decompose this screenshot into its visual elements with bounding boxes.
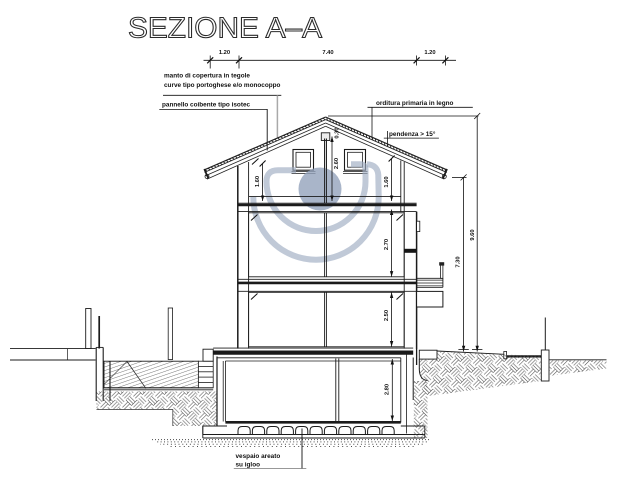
svg-text:2.50: 2.50 — [384, 310, 390, 321]
svg-text:2.60: 2.60 — [334, 158, 340, 169]
svg-text:SEZIONE A–A: SEZIONE A–A — [128, 13, 323, 45]
svg-text:2.70: 2.70 — [384, 239, 390, 250]
svg-text:1.20: 1.20 — [424, 50, 435, 56]
svg-text:vespaio areato: vespaio areato — [236, 453, 281, 460]
svg-text:orditura primaria in legno: orditura primaria in legno — [376, 100, 454, 107]
svg-text:7.40: 7.40 — [322, 50, 333, 56]
svg-text:7.30: 7.30 — [456, 256, 462, 267]
svg-text:0.30: 0.30 — [334, 127, 340, 138]
svg-text:2.80: 2.80 — [385, 384, 391, 395]
svg-text:su igloo: su igloo — [236, 462, 261, 469]
svg-text:1.20: 1.20 — [219, 50, 230, 56]
svg-text:manto di copertura in tegole: manto di copertura in tegole — [164, 73, 250, 80]
svg-text:pannello coibente tipo isotec: pannello coibente tipo isotec — [162, 101, 251, 108]
svg-text:9.60: 9.60 — [470, 229, 476, 240]
svg-text:1.60: 1.60 — [255, 176, 261, 187]
svg-text:curve tipo portoghese e/o mono: curve tipo portoghese e/o monocoppo — [164, 82, 281, 89]
svg-text:pendenza > 15°: pendenza > 15° — [389, 130, 436, 138]
svg-text:1.60: 1.60 — [384, 176, 390, 187]
